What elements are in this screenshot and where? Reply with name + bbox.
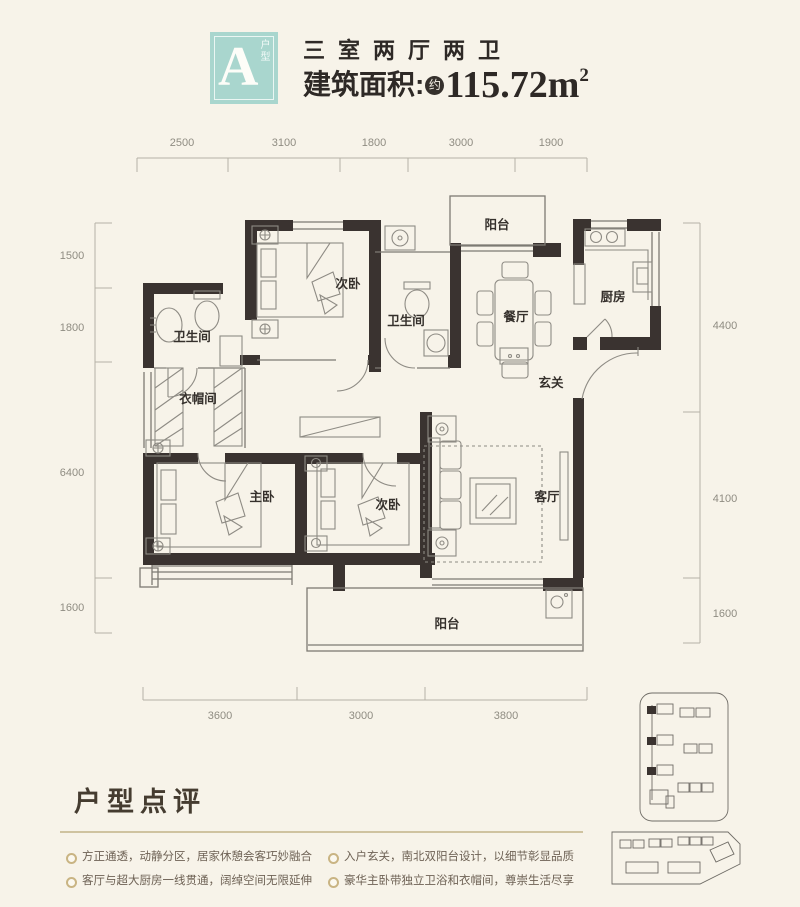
dim-left-2: 1800 <box>60 322 84 334</box>
room-label-kitchen: 厨房 <box>600 289 625 304</box>
bathroom-left-fixtures <box>150 291 242 366</box>
room-label-bathroom-left: 卫生间 <box>173 329 211 344</box>
dim-bottom-3: 3800 <box>494 710 518 722</box>
room-labels: 阳台 次卧 卫生间 卫生间 餐厅 厨房 玄关 衣帽间 主卧 次卧 客厅 阳台 <box>173 217 625 631</box>
room-label-dining: 餐厅 <box>502 309 529 324</box>
room-label-foyer: 玄关 <box>538 375 564 390</box>
balcony-washer <box>546 590 572 618</box>
review-bullet: 入户玄关，南北双阳台设计，以细节彰显品质 <box>328 850 586 865</box>
tv-console <box>560 452 568 540</box>
bullet-ring-icon <box>328 853 339 864</box>
slider-living-balcony <box>432 579 543 585</box>
bullet-text: 入户玄关，南北双阳台设计，以细节彰显品质 <box>344 850 574 865</box>
room-label-master: 主卧 <box>249 489 275 504</box>
review-bullet: 豪华主卧带独立卫浴和衣帽间，尊崇生活尽享 <box>328 874 586 889</box>
slider-dining-balcony <box>461 246 533 251</box>
dim-top-3: 1800 <box>362 137 386 149</box>
dim-top-5: 1900 <box>539 137 563 149</box>
coffee-table <box>470 478 516 524</box>
floorplan-drawing: 2500 3100 1800 3000 1900 1500 1800 6400 … <box>0 0 800 907</box>
room-label-bathroom-mid: 卫生间 <box>387 313 425 328</box>
room-label-balcony-top: 阳台 <box>484 217 509 232</box>
entry-door <box>582 347 638 399</box>
dim-left-4: 1600 <box>60 602 84 614</box>
dim-left-1: 1500 <box>60 250 84 262</box>
room-label-bedroom-bottom: 次卧 <box>375 497 401 512</box>
dim-top-1: 2500 <box>170 137 194 149</box>
bullet-text: 豪华主卧带独立卫浴和衣帽间，尊崇生活尽享 <box>344 874 574 889</box>
dim-left-3: 6400 <box>60 467 84 479</box>
dim-right-3: 1600 <box>713 608 737 620</box>
room-label-balcony-bottom: 阳台 <box>434 616 459 631</box>
bullet-text: 客厅与超大厨房一线贯通，阔绰空间无限延伸 <box>82 874 312 889</box>
dim-bottom-2: 3000 <box>349 710 373 722</box>
dimension-lines <box>95 158 700 700</box>
site-plan <box>612 693 740 884</box>
bullet-ring-icon <box>328 877 339 888</box>
bed-top <box>257 243 343 317</box>
dim-right-1: 4400 <box>713 320 737 332</box>
living-furniture <box>424 416 568 562</box>
room-label-living: 客厅 <box>533 489 560 504</box>
floorplan-page: { "header": { "badge_letter": "A", "badg… <box>0 0 800 907</box>
window-kitchen-top <box>591 221 627 228</box>
review-bullets: 方正通透，动静分区，居家休憩会客巧妙融合 客厅与超大厨房一线贯通，阔绰空间无限延… <box>66 850 586 889</box>
review-bullet: 客厅与超大厨房一线贯通，阔绰空间无限延伸 <box>66 874 328 889</box>
window-kitchen-right <box>652 232 659 306</box>
dim-bottom-1: 3600 <box>208 710 232 722</box>
site-plan-highlighted-buildings <box>647 706 656 775</box>
bullet-ring-icon <box>66 853 77 864</box>
bathroom-mid-fixtures <box>385 226 448 356</box>
dim-top-4: 3000 <box>449 137 473 149</box>
dim-top-2: 3100 <box>272 137 296 149</box>
planter <box>140 568 158 587</box>
dim-right-2: 4100 <box>713 493 737 505</box>
review-bullet: 方正通透，动静分区，居家休憩会客巧妙融合 <box>66 850 328 865</box>
bullet-text: 方正通透，动静分区，居家休憩会客巧妙融合 <box>82 850 312 865</box>
bay-window-master <box>152 565 292 585</box>
review-heading: 户型点评 <box>74 780 206 819</box>
window-cloakroom <box>144 372 151 448</box>
room-label-bedroom-top: 次卧 <box>335 276 361 291</box>
bullet-ring-icon <box>66 877 77 888</box>
room-label-cloakroom: 衣帽间 <box>179 391 217 406</box>
review-divider <box>60 831 583 833</box>
window-bedroom-top <box>293 222 343 229</box>
